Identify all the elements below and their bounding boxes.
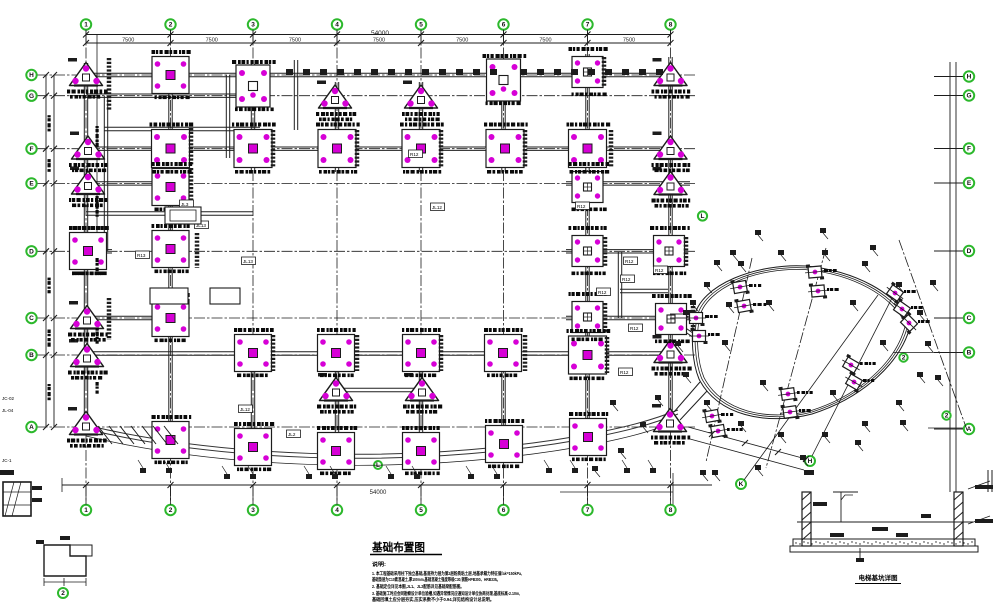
svg-text:E: E xyxy=(967,180,972,187)
svg-text:说明:: 说明: xyxy=(372,560,386,568)
svg-text:6: 6 xyxy=(502,507,506,514)
svg-text:B: B xyxy=(967,350,972,357)
svg-text:1: 1 xyxy=(84,507,88,514)
svg-text:7500: 7500 xyxy=(206,38,218,44)
svg-text:F: F xyxy=(967,146,971,153)
svg-text:L: L xyxy=(376,462,380,469)
svg-text:R12: R12 xyxy=(577,204,586,209)
svg-text:6: 6 xyxy=(502,22,506,29)
svg-text:JL2: JL2 xyxy=(288,432,296,437)
svg-text:G: G xyxy=(966,93,971,100)
svg-text:K: K xyxy=(739,481,744,488)
svg-text:JC-1: JC-1 xyxy=(2,458,12,463)
svg-text:JL3: JL3 xyxy=(181,202,189,207)
svg-text:电梯基坑详图: 电梯基坑详图 xyxy=(859,573,899,582)
svg-text:R12: R12 xyxy=(630,326,639,331)
svg-text:4: 4 xyxy=(335,507,339,514)
svg-text:JL12: JL12 xyxy=(240,407,250,412)
svg-text:7: 7 xyxy=(586,507,590,514)
svg-text:4: 4 xyxy=(335,22,339,29)
svg-text:L: L xyxy=(701,213,705,220)
svg-text:7500: 7500 xyxy=(456,38,468,44)
svg-text:3: 3 xyxy=(251,507,255,514)
svg-text:7500: 7500 xyxy=(122,38,134,44)
svg-text:2: 2 xyxy=(169,22,173,29)
svg-text:F: F xyxy=(30,146,34,153)
svg-text:R12: R12 xyxy=(622,277,631,282)
svg-text:R12: R12 xyxy=(655,268,664,273)
svg-text:R12: R12 xyxy=(598,290,607,295)
svg-text:C: C xyxy=(29,315,34,322)
svg-text:基础垫层为C10素混凝土,厚100mm,基础混凝土强度等级C: 基础垫层为C10素混凝土,厚100mm,基础混凝土强度等级C30,钢筋HPB30… xyxy=(372,576,500,583)
svg-text:JL12: JL12 xyxy=(432,205,442,210)
svg-text:54000: 54000 xyxy=(371,30,389,37)
svg-text:2: 2 xyxy=(902,355,906,362)
svg-text:R13: R13 xyxy=(137,253,146,258)
svg-text:JL-04: JL-04 xyxy=(2,408,14,413)
svg-text:H: H xyxy=(29,72,34,79)
svg-text:D: D xyxy=(967,248,972,255)
svg-text:1. 本工程基础采用柱下独立基础,基底持力层为第2层粉质粘土: 1. 本工程基础采用柱下独立基础,基底持力层为第2层粉质粘土层,地基承载力特征值… xyxy=(372,570,522,577)
svg-text:G: G xyxy=(29,93,34,100)
svg-text:7500: 7500 xyxy=(289,38,301,44)
svg-text:JC-02: JC-02 xyxy=(2,396,15,401)
svg-text:B: B xyxy=(29,352,34,359)
svg-text:2. 基础定位详见本图,JL1、JL2配筋详见基础梁配筋图。: 2. 基础定位详见本图,JL1、JL2配筋详见基础梁配筋图。 xyxy=(372,583,464,590)
svg-text:5: 5 xyxy=(419,507,423,514)
svg-text:7500: 7500 xyxy=(623,38,635,44)
svg-text:A: A xyxy=(967,426,972,433)
svg-text:54000: 54000 xyxy=(370,490,387,496)
svg-text:8: 8 xyxy=(669,22,673,29)
svg-text:1: 1 xyxy=(84,22,88,29)
svg-text:7500: 7500 xyxy=(373,38,385,44)
svg-text:D: D xyxy=(29,249,34,256)
svg-text:8: 8 xyxy=(669,507,673,514)
svg-text:E: E xyxy=(29,181,34,188)
svg-text:H: H xyxy=(808,458,813,465)
svg-text:A: A xyxy=(29,424,34,431)
svg-text:C: C xyxy=(967,315,972,322)
svg-text:3. 基础施工时应会同勘察设计单位验槽,如遇异常情况应通知设: 3. 基础施工时应会同勘察设计单位验槽,如遇异常情况应通知设计单位协商处理,基底… xyxy=(372,590,520,597)
svg-text:R12: R12 xyxy=(410,152,419,157)
svg-text:7: 7 xyxy=(586,22,590,29)
svg-text:3: 3 xyxy=(251,22,255,29)
svg-text:5: 5 xyxy=(419,22,423,29)
svg-text:基础布置图: 基础布置图 xyxy=(371,540,425,554)
svg-text:JL13: JL13 xyxy=(243,259,253,264)
svg-text:2: 2 xyxy=(945,413,949,420)
svg-text:H: H xyxy=(967,74,972,81)
svg-text:R12: R12 xyxy=(620,370,629,375)
svg-text:R12: R12 xyxy=(625,259,634,264)
svg-text:2: 2 xyxy=(61,590,65,597)
svg-text:2: 2 xyxy=(169,507,173,514)
svg-text:基础回填土应分层夯实,压实系数不小于0.94,详见结构设计总: 基础回填土应分层夯实,压实系数不小于0.94,详见结构设计总说明。 xyxy=(372,596,494,603)
svg-text:7500: 7500 xyxy=(539,38,551,44)
